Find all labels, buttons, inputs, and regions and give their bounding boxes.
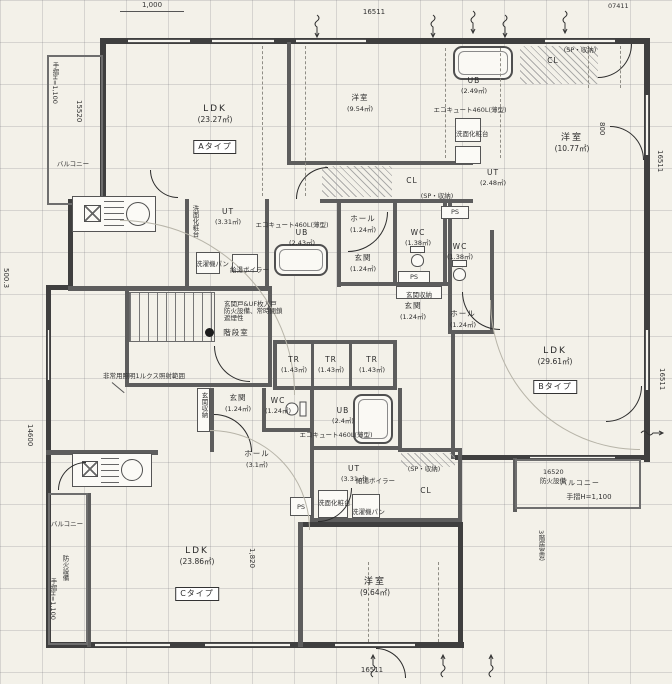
- toilet: [410, 246, 425, 268]
- vanity-label: 洗面化粧台: [456, 128, 489, 138]
- room-label-genkan-c: 玄関(1.24㎡): [225, 392, 251, 413]
- dim-right-upper: 16511: [656, 150, 664, 172]
- dim-left-mid: 500.3: [2, 268, 10, 288]
- boiler-label: 給湯ボイラー: [230, 264, 269, 274]
- room-area: (1.24㎡): [350, 224, 376, 234]
- room-area: (1.24㎡): [350, 263, 376, 273]
- cooktop-icon: [84, 205, 101, 222]
- dim-top-left: 1,000: [142, 1, 162, 9]
- window: [335, 643, 415, 647]
- dim-right-lower: 16511: [658, 368, 666, 390]
- room-area: (1.38㎡): [405, 237, 431, 247]
- wall: [311, 340, 314, 390]
- entrance-door-note: 遮煙性: [224, 312, 244, 322]
- room-label-ldk-c: LDK(23.86㎡): [180, 546, 215, 567]
- ecocute-label: エコキュート460L(薄型): [299, 429, 372, 439]
- floor-plan-sheet: LDK(23.27㎡) Aタイプ 洋室(9.54㎡) UT(3.31㎡) UB(…: [0, 0, 672, 684]
- room-name: UT: [215, 207, 241, 216]
- service-line: [500, 48, 501, 158]
- room-name: TR: [359, 355, 385, 364]
- room-name: CL: [420, 486, 431, 495]
- room-name: 玄関: [400, 300, 426, 311]
- room-label-yoshitsu-b: 洋室(10.77㎡): [555, 130, 590, 154]
- balcony-label: バルコニー: [560, 478, 600, 488]
- room-area: (1.24㎡): [225, 403, 251, 413]
- room-name: 玄関: [350, 252, 376, 263]
- vent-arrow-icon: [368, 652, 378, 678]
- room-area: (23.27㎡): [198, 114, 233, 125]
- room-area: (1.24㎡): [265, 405, 291, 415]
- room-name: TR: [318, 355, 344, 364]
- dim-line: [120, 11, 184, 12]
- room-label-ldk-b: LDK(29.61㎡): [538, 346, 573, 367]
- ps-label: PS: [297, 503, 305, 511]
- wall: [312, 518, 462, 522]
- balcony-label: バルコニー: [51, 518, 83, 528]
- bathtub: [453, 46, 513, 80]
- handrail-note: 手摺H=1,100: [48, 578, 58, 620]
- room-label-tr3: TR(1.43㎡): [359, 355, 385, 374]
- sp-storage-note: (SP・収納): [564, 44, 597, 54]
- room-area: (1.43㎡): [359, 364, 385, 374]
- room-name: UT: [341, 464, 367, 473]
- room-area: (3.31㎡): [215, 216, 241, 226]
- room-label-cl-b: CL: [547, 56, 558, 65]
- wall: [349, 340, 352, 390]
- room-area: (1.24㎡): [450, 319, 476, 329]
- room-name: LDK: [538, 346, 573, 356]
- room-label-hall-a: ホール(1.24㎡): [350, 213, 376, 234]
- genkan-storage-label: 玄関収納: [199, 392, 209, 418]
- wall: [393, 340, 397, 390]
- wall: [273, 340, 397, 344]
- ps-label: PS: [451, 208, 459, 216]
- balcony-label: バルコニー: [57, 158, 89, 168]
- closet-hatch: [322, 166, 392, 197]
- room-label-genkan-a: 玄関(1.24㎡): [350, 252, 376, 273]
- sp-storage-note: (SP・収納): [408, 463, 441, 473]
- room-name: UB: [461, 76, 487, 85]
- wall: [458, 448, 462, 522]
- service-line: [438, 562, 439, 642]
- room-label-yoshitsu-a: 洋室(9.54㎡): [347, 92, 373, 113]
- vent-arrow-icon: [438, 652, 448, 678]
- service-line: [445, 48, 446, 158]
- washer-pan-label: 洗濯機パン: [196, 258, 229, 268]
- room-area: (2.49㎡): [461, 85, 487, 95]
- vent-arrow-icon: [428, 14, 438, 40]
- handrail-note: 手摺H=1,100: [50, 62, 60, 104]
- vanity-label: 洗面化粧台: [318, 497, 351, 507]
- window-3f-note: 3階居室窓: [536, 530, 546, 560]
- ecocute-label: エコキュート460L(薄型): [255, 219, 328, 229]
- type-label-b: Bタイプ: [533, 380, 577, 394]
- wall: [287, 42, 291, 165]
- vent-arrow-icon: [312, 14, 322, 40]
- room-label-wc-a: WC(1.38㎡): [405, 228, 431, 247]
- room-name: LDK: [198, 104, 233, 114]
- room-label-cl-c: CL: [420, 486, 431, 495]
- window: [545, 39, 615, 43]
- room-label-stairwell: 階段室: [223, 327, 249, 338]
- wall: [287, 161, 473, 165]
- wall: [298, 522, 460, 527]
- room-label-cl-a: CL: [406, 176, 417, 185]
- room-label-yoshitsu-c: 洋室(9.64㎡): [360, 574, 390, 598]
- vent-arrow-icon: [560, 10, 570, 36]
- vent-arrow-icon: [468, 10, 478, 36]
- room-label-genkan-b: 玄関(1.24㎡): [400, 300, 426, 321]
- fire-equipment-note: 防火設備: [540, 475, 566, 485]
- window: [212, 39, 274, 43]
- type-label-a: Aタイプ: [193, 140, 236, 154]
- room-name: 玄関: [225, 392, 251, 403]
- ps-label: PS: [410, 273, 418, 281]
- room-area: (3.1㎡): [244, 459, 270, 469]
- window: [128, 39, 190, 43]
- room-label-tr1: TR(1.43㎡): [281, 355, 307, 374]
- window: [645, 330, 649, 390]
- fire-equipment-note: 防火設備: [60, 555, 70, 581]
- room-name: WC: [405, 228, 431, 237]
- vent-arrow-icon: [500, 14, 510, 40]
- room-name: ホール: [350, 213, 376, 224]
- room-name: 洋室: [347, 92, 373, 103]
- room-label-wc-b: WC(1.38㎡): [447, 242, 473, 261]
- dim-800: 800: [598, 122, 606, 135]
- service-line: [305, 46, 306, 196]
- room-label-hall-b: ホール(1.24㎡): [450, 308, 476, 329]
- service-line: [620, 46, 621, 88]
- window: [205, 643, 290, 647]
- room-name: ホール: [244, 448, 270, 459]
- wall: [451, 333, 455, 459]
- wall: [312, 446, 400, 450]
- kitchen-sink: [121, 459, 143, 481]
- room-name: WC: [265, 396, 291, 405]
- room-name: WC: [447, 242, 473, 251]
- room-area: (9.54㎡): [347, 103, 373, 113]
- handrail-note: 手摺H=1,100: [566, 492, 611, 502]
- room-label-wc-c: WC(1.24㎡): [265, 396, 291, 415]
- dim-bottom-center: 16511: [361, 666, 383, 674]
- room-name: UT: [480, 168, 506, 177]
- room-label-hall-c: ホール(3.1㎡): [244, 448, 270, 469]
- room-label-ldk-a: LDK(23.27㎡): [198, 104, 233, 125]
- emergency-light-note: 非常用照明1ルクス照射範囲: [103, 370, 185, 380]
- wall: [298, 522, 303, 647]
- bathtub: [274, 244, 328, 276]
- window: [47, 330, 50, 380]
- vent-arrow-icon: [486, 652, 496, 678]
- service-line: [262, 46, 263, 196]
- room-label-ut-a: UT(3.31㎡): [215, 207, 241, 226]
- room-area: (2.48㎡): [480, 177, 506, 187]
- wall: [398, 448, 460, 452]
- type-label-c: Cタイプ: [175, 587, 219, 601]
- dim-top-right: 07411: [608, 2, 629, 10]
- genkan-storage-label: 玄関収納: [406, 289, 432, 299]
- room-area: (1.43㎡): [281, 364, 307, 374]
- room-name: 洋室: [555, 130, 590, 143]
- room-name: UB: [332, 406, 354, 415]
- room-name: TR: [281, 355, 307, 364]
- room-name: ホール: [450, 308, 476, 319]
- boiler-label: 給湯ボイラー: [356, 475, 395, 485]
- room-name: 洋室: [360, 574, 390, 587]
- room-area: (1.24㎡): [400, 311, 426, 321]
- vent-arrow-icon: [640, 428, 666, 438]
- room-area: (1.38㎡): [447, 251, 473, 261]
- dim-left-upper: 15520: [75, 100, 83, 122]
- room-label-ut-b: UT(2.48㎡): [480, 168, 506, 187]
- room-label-ub-c: UB(2.4㎡): [332, 406, 354, 425]
- ecocute-label: エコキュート460L(薄型): [433, 104, 506, 114]
- room-label-ub-a: UB(2.43㎡): [289, 228, 315, 247]
- room-area: (1.43㎡): [318, 364, 344, 374]
- dim-1820: 1,820: [248, 548, 256, 568]
- window: [645, 95, 649, 155]
- room-area: (10.77㎡): [555, 143, 590, 154]
- room-area: (2.4㎡): [332, 415, 354, 425]
- room-area: (9.64㎡): [360, 587, 390, 598]
- room-area: (29.61㎡): [538, 356, 573, 367]
- room-label-tr2: TR(1.43㎡): [318, 355, 344, 374]
- room-name: UB: [289, 228, 315, 237]
- dim-top-center: 16511: [363, 8, 385, 16]
- window: [296, 39, 366, 43]
- vanity-label: 洗面化粧台: [190, 205, 200, 238]
- room-area: (2.43㎡): [289, 237, 315, 247]
- room-area: (23.86㎡): [180, 556, 215, 567]
- washer-pan-label: 洗濯機パン: [352, 506, 385, 516]
- washer-pan-box: [455, 146, 481, 164]
- room-name: LDK: [180, 546, 215, 556]
- room-name: 階段室: [223, 327, 249, 338]
- window: [95, 643, 170, 647]
- wall: [398, 388, 402, 452]
- wall: [393, 203, 397, 285]
- dim-left-lower: 14600: [26, 424, 34, 446]
- kitchen-drainboard: [101, 458, 119, 483]
- room-name: CL: [547, 56, 558, 65]
- wall: [337, 199, 341, 287]
- toilet: [452, 260, 467, 282]
- wall: [458, 522, 463, 647]
- room-name: CL: [406, 176, 417, 185]
- room-label-ub-b: UB(2.49㎡): [461, 76, 487, 95]
- sp-storage-note: (SP・収納): [421, 190, 454, 200]
